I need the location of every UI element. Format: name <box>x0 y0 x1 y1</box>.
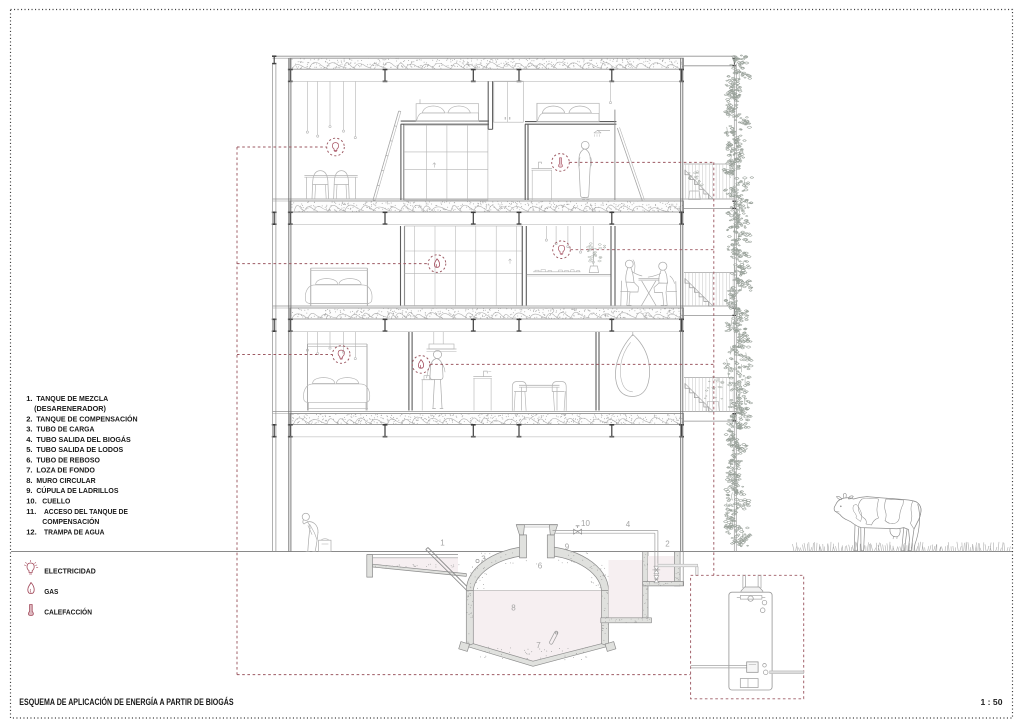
svg-text:TUBO DE CARGA: TUBO DE CARGA <box>36 425 95 434</box>
svg-text:COMPENSACIÓN: COMPENSACIÓN <box>42 517 99 526</box>
svg-text:7.: 7. <box>26 466 32 475</box>
svg-text:ELECTRICIDAD: ELECTRICIDAD <box>44 566 96 575</box>
svg-text:4.: 4. <box>26 435 32 444</box>
svg-text:CALEFACCIÓN: CALEFACCIÓN <box>44 607 92 616</box>
svg-text:GAS: GAS <box>44 587 58 596</box>
svg-text:ACCESO DEL TANQUE DE: ACCESO DEL TANQUE DE <box>44 507 128 516</box>
svg-text:TUBO SALIDA DEL BIOGÁS: TUBO SALIDA DEL BIOGÁS <box>36 435 130 444</box>
svg-text:5.: 5. <box>26 445 32 454</box>
svg-text:TUBO DE REBOSO: TUBO DE REBOSO <box>36 455 100 464</box>
svg-text:9: 9 <box>565 543 570 552</box>
svg-text:9.: 9. <box>26 486 32 495</box>
svg-text:3: 3 <box>481 555 486 564</box>
svg-text:3.: 3. <box>26 425 32 434</box>
svg-text:4: 4 <box>626 520 631 529</box>
svg-text:11.: 11. <box>26 507 36 516</box>
svg-text:1.: 1. <box>26 394 32 403</box>
svg-text:2: 2 <box>665 540 670 549</box>
svg-text:ESQUEMA DE APLICACIÓN DE ENERG: ESQUEMA DE APLICACIÓN DE ENERGÍA A PARTI… <box>19 696 233 707</box>
svg-text:TUBO SALIDA DE LODOS: TUBO SALIDA DE LODOS <box>36 445 123 454</box>
svg-text:8.: 8. <box>26 476 32 485</box>
svg-text:LOZA DE FONDO: LOZA DE FONDO <box>36 466 95 475</box>
svg-text:(DESARENERADOR): (DESARENERADOR) <box>34 404 106 413</box>
svg-text:7: 7 <box>536 641 541 650</box>
svg-text:TRAMPA DE AGUA: TRAMPA DE AGUA <box>44 527 105 536</box>
svg-text:TANQUE DE COMPENSACIÓN: TANQUE DE COMPENSACIÓN <box>36 414 137 423</box>
svg-text:10.: 10. <box>26 497 37 506</box>
svg-text:1: 1 <box>440 539 445 548</box>
svg-text:CUELLO: CUELLO <box>42 497 70 506</box>
svg-text:TANQUE DE MEZCLA: TANQUE DE MEZCLA <box>36 394 108 403</box>
svg-text:2.: 2. <box>26 414 32 423</box>
svg-text:1 : 50: 1 : 50 <box>981 697 1003 707</box>
svg-text:CÚPULA DE LADRILLOS: CÚPULA DE LADRILLOS <box>36 486 118 495</box>
svg-text:6.: 6. <box>26 455 32 464</box>
svg-text:MURO CIRCULAR: MURO CIRCULAR <box>36 476 96 485</box>
svg-text:6: 6 <box>538 562 543 571</box>
svg-text:10: 10 <box>581 519 590 528</box>
svg-text:12.: 12. <box>26 527 37 536</box>
svg-text:8: 8 <box>511 604 516 613</box>
